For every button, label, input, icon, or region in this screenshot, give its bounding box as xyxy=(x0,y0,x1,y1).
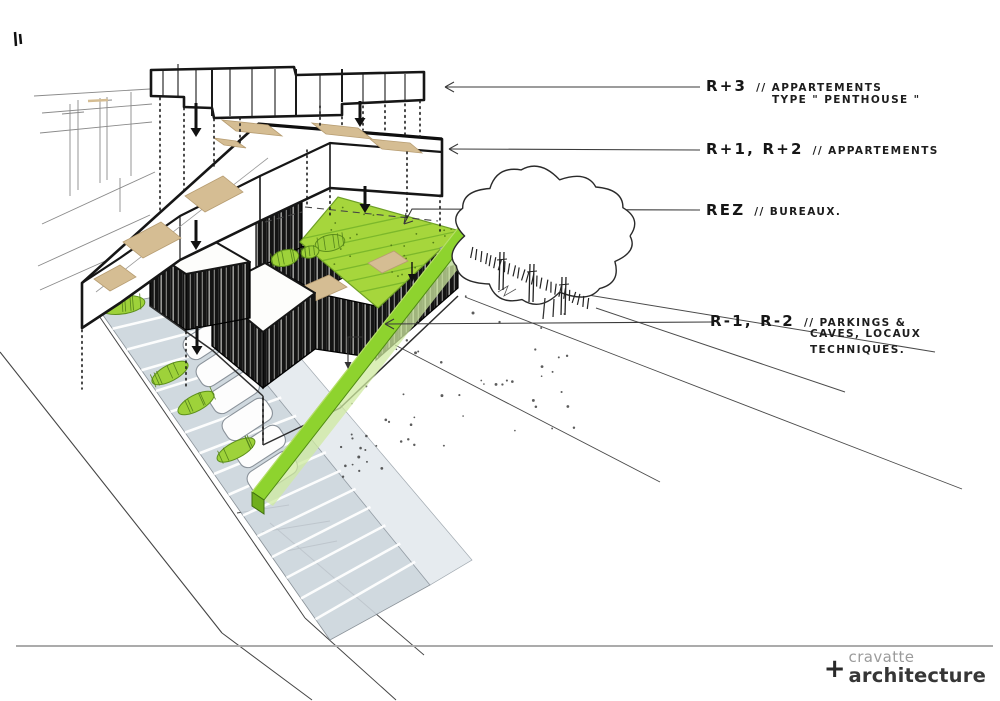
logo-plus-icon: + xyxy=(824,654,846,684)
corner-mark xyxy=(15,32,21,46)
label-rez-code: REZ xyxy=(706,201,745,219)
tree-icon xyxy=(452,166,635,319)
label-r1r2-minus: R-1, R-2// PARKINGS & CAVES, LOCAUX TECH… xyxy=(710,311,906,330)
label-r1r2-code: R+1, R+2 xyxy=(706,140,804,158)
logo-name-bottom: architecture xyxy=(849,665,986,686)
label-rm-desc3: TECHNIQUES. xyxy=(810,344,905,356)
firm-logo: + cravatte architecture xyxy=(824,650,986,686)
label-rez-desc: // BUREAUX. xyxy=(754,206,841,218)
sketch-page: R+3// APPARTEMENTS TYPE " PENTHOUSE " R+… xyxy=(0,0,1000,701)
label-rm-code: R-1, R-2 xyxy=(710,312,795,330)
label-rm-desc2: CAVES, LOCAUX xyxy=(810,328,921,340)
label-r3-code: R+3 xyxy=(706,77,747,95)
label-r3: R+3// APPARTEMENTS TYPE " PENTHOUSE " xyxy=(706,76,882,95)
logo-name-top: cravatte xyxy=(849,650,986,665)
label-rez: REZ// BUREAUX. xyxy=(706,200,841,219)
label-r1r2: R+1, R+2// APPARTEMENTS xyxy=(706,139,939,158)
label-r1r2-desc: // APPARTEMENTS xyxy=(813,145,939,157)
slab-r3 xyxy=(151,64,424,118)
label-r3-desc: // APPARTEMENTS xyxy=(756,82,882,94)
label-r3-desc2: TYPE " PENTHOUSE " xyxy=(772,94,921,106)
